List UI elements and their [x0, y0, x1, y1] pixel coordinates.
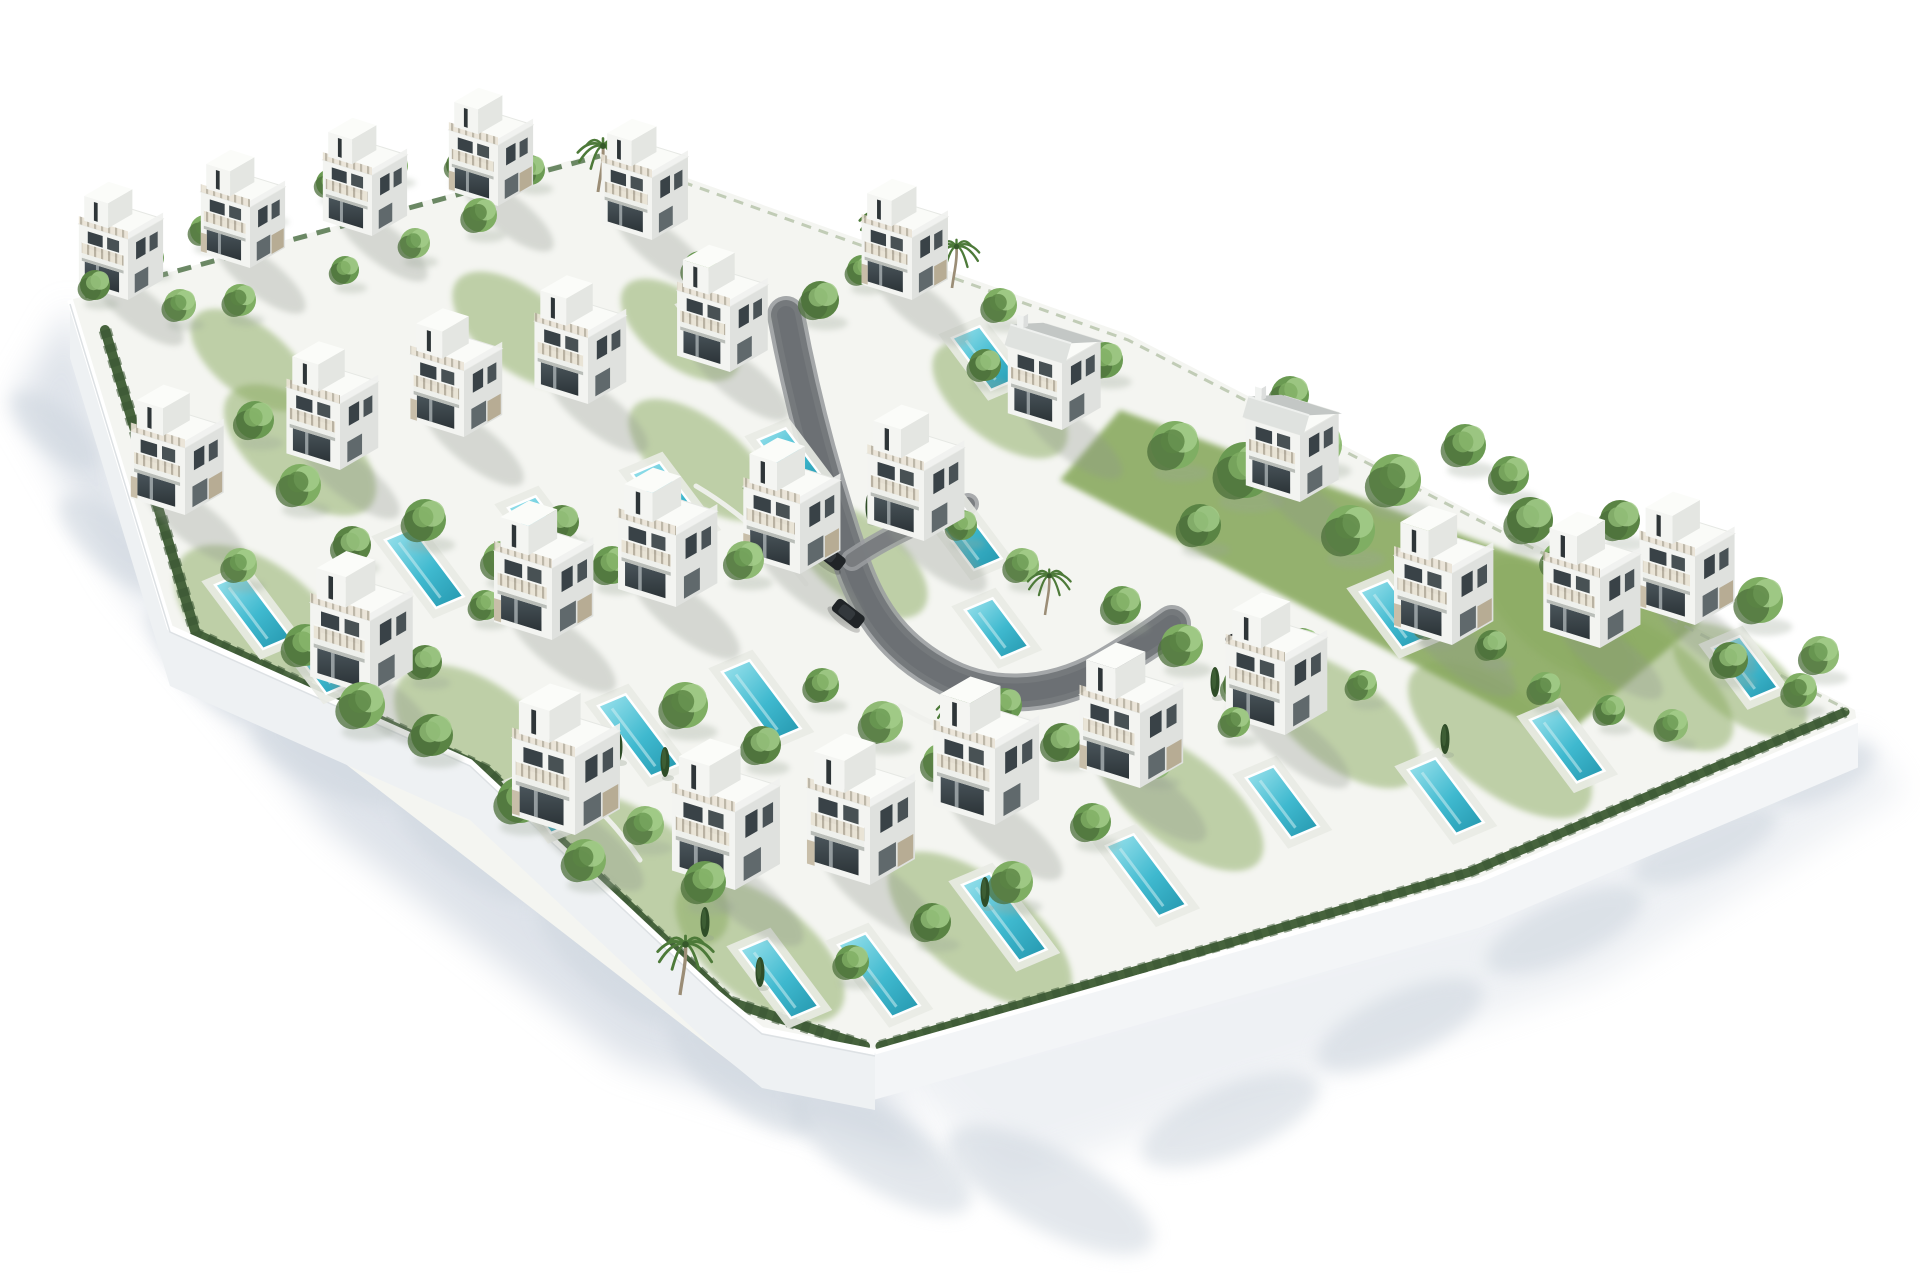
villa: [201, 150, 285, 268]
villa: [862, 179, 948, 300]
render-canvas: [0, 0, 1920, 1280]
villa: [602, 119, 688, 240]
villa: [323, 118, 407, 236]
tree: [1441, 424, 1486, 467]
villa: [1640, 492, 1735, 625]
villa-sloped-roof: [1243, 386, 1342, 502]
villa-development-3d-render: [0, 0, 1920, 1280]
villa: [449, 88, 533, 206]
tree: [1733, 577, 1783, 624]
tree: [1798, 636, 1839, 675]
tree: [1488, 456, 1529, 495]
